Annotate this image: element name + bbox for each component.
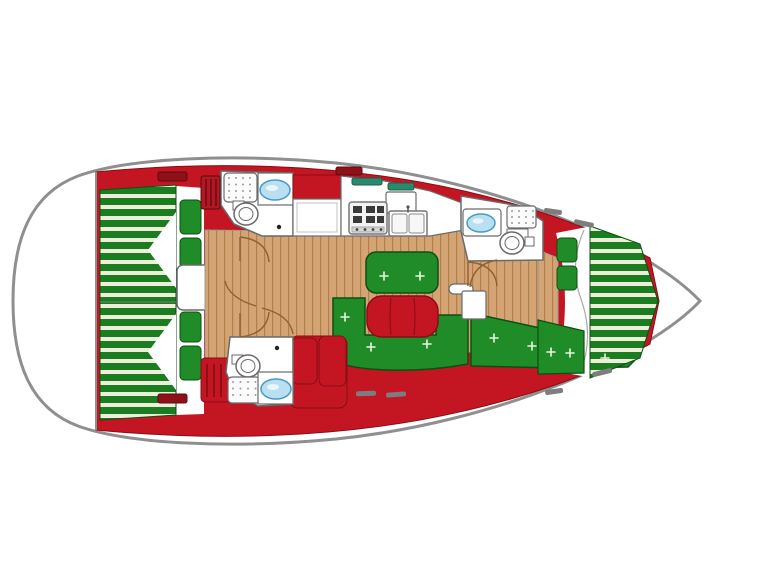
deck-window-strip [352, 178, 382, 185]
toilet-bowl [500, 232, 524, 254]
fwd-pillow [557, 266, 577, 290]
sink-highlight [267, 384, 279, 390]
stove-burner [377, 206, 384, 213]
nav-cabinet [462, 291, 486, 319]
toilet-bowl [234, 203, 258, 225]
stove-burner [377, 216, 384, 223]
sink-highlight [473, 218, 484, 223]
stove-burner [366, 206, 375, 213]
salon-table [366, 252, 438, 293]
vberth-mattress [590, 226, 658, 378]
deck-hatch [158, 394, 187, 403]
deck-hatch [158, 172, 187, 181]
aft-pillow [180, 346, 201, 380]
galley-sink-basin [409, 214, 424, 233]
toilet-bowl [236, 355, 260, 377]
door-knob-dot [277, 225, 281, 229]
stove-burner [353, 206, 362, 213]
red-sofa-backrest [292, 338, 317, 384]
faucet-dot [406, 205, 409, 208]
aft-pillow [180, 238, 201, 268]
mid-cabinet [293, 199, 341, 236]
fwd-pillow [557, 238, 577, 262]
galley-sink-basin [392, 214, 407, 233]
stove-burner [353, 216, 362, 223]
screenshot-root [0, 0, 768, 576]
red-sofa-backrest [319, 336, 346, 386]
toilet-tank [525, 237, 534, 246]
stove-burner [366, 216, 375, 223]
sink-highlight [266, 185, 278, 191]
deck-window-strip [388, 183, 414, 190]
shower-grate [228, 377, 260, 403]
door-knob-dot [275, 346, 279, 350]
deck-hatch [336, 167, 362, 175]
sailboat-floorplan-diagram [0, 0, 768, 576]
aft-pillow [180, 200, 201, 234]
handrail-dash [356, 391, 376, 397]
mid-red-locker [293, 175, 341, 199]
salon-curved-seat [367, 296, 438, 337]
fridge-box [386, 192, 416, 213]
aft-pillow [180, 312, 201, 342]
